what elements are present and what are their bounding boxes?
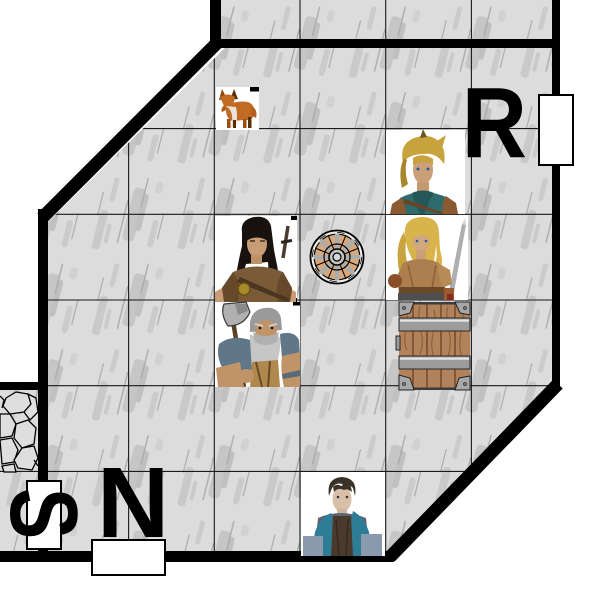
svg-text:R: R — [462, 68, 527, 179]
svg-text:S: S — [0, 488, 97, 539]
svg-text:N: N — [97, 447, 169, 559]
